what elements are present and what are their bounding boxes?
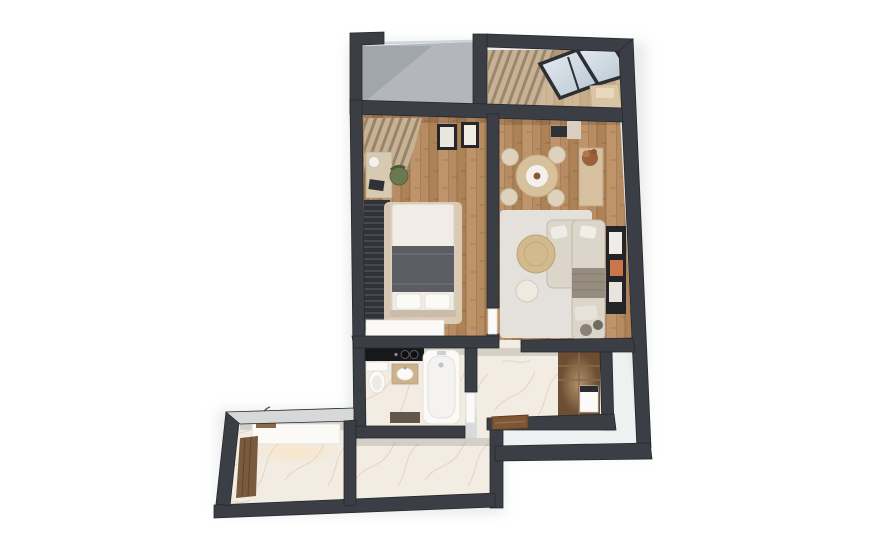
washer-control-strip <box>580 386 598 392</box>
toilet-tank <box>366 362 388 371</box>
wall-bathroom-bottom <box>354 426 465 438</box>
wall-loggia-left <box>473 34 487 114</box>
sink-faucet <box>404 367 407 370</box>
sink-basin <box>397 368 413 380</box>
toilet-seat <box>372 376 382 391</box>
floorplan-svg <box>0 0 890 556</box>
bathtub-drain <box>439 363 444 368</box>
wall-bedroom-bottom <box>352 336 499 348</box>
desk-laptop <box>368 179 384 191</box>
bathroom-door-leaf <box>466 393 475 423</box>
wall-partition-upper <box>487 114 499 308</box>
bathtub-faucet <box>437 351 446 355</box>
niche-art-1 <box>609 232 622 254</box>
counter-knob-1 <box>401 351 409 359</box>
side-table <box>516 280 538 302</box>
bathtub <box>423 350 460 424</box>
wall-bathroom-right <box>465 348 477 392</box>
wall-frame-1-art <box>440 127 454 147</box>
wall-frame-2-art <box>464 125 476 145</box>
niche-art-2 <box>610 260 623 276</box>
sofa-pillow-3 <box>574 305 597 321</box>
dining-chair-3 <box>501 189 518 206</box>
pouf-1 <box>580 324 592 336</box>
wall-hall-bottom <box>495 443 652 461</box>
counter-knob-2 <box>410 351 418 359</box>
counter-knob-3 <box>394 353 397 356</box>
wall-niche-with-art <box>606 226 626 314</box>
dining-table-decor <box>534 173 541 180</box>
wall-entry-divider <box>344 420 356 506</box>
bed-pillow-right <box>425 294 450 309</box>
sofa-pillow-2 <box>579 225 597 239</box>
hallway <box>558 352 600 416</box>
bed-pillow-left <box>396 294 421 309</box>
niche-art-3 <box>609 282 622 302</box>
sofa-throw <box>572 268 605 298</box>
pouf-2 <box>593 320 603 330</box>
loggia-bench-cushion <box>596 88 614 98</box>
bed-blanket <box>392 246 454 292</box>
plant-foliage-1 <box>583 151 590 158</box>
dining-chair-1 <box>502 149 519 166</box>
vanity-sink <box>392 364 418 384</box>
floorplan-render <box>0 0 890 556</box>
bed-headboard <box>390 310 456 317</box>
plant-foliage-2 <box>591 149 597 155</box>
built-in-wardrobe <box>558 352 600 416</box>
bedroom-door-leaf <box>488 309 497 334</box>
corner-pillar <box>567 121 581 139</box>
double-bed <box>390 204 456 317</box>
desk-lamp <box>369 157 380 168</box>
round-coffee-table <box>517 235 555 273</box>
bath-mat <box>390 412 420 423</box>
living-door-floor-patch <box>499 340 521 352</box>
wall-living-bottom <box>521 338 635 352</box>
low-dresser <box>366 320 444 336</box>
